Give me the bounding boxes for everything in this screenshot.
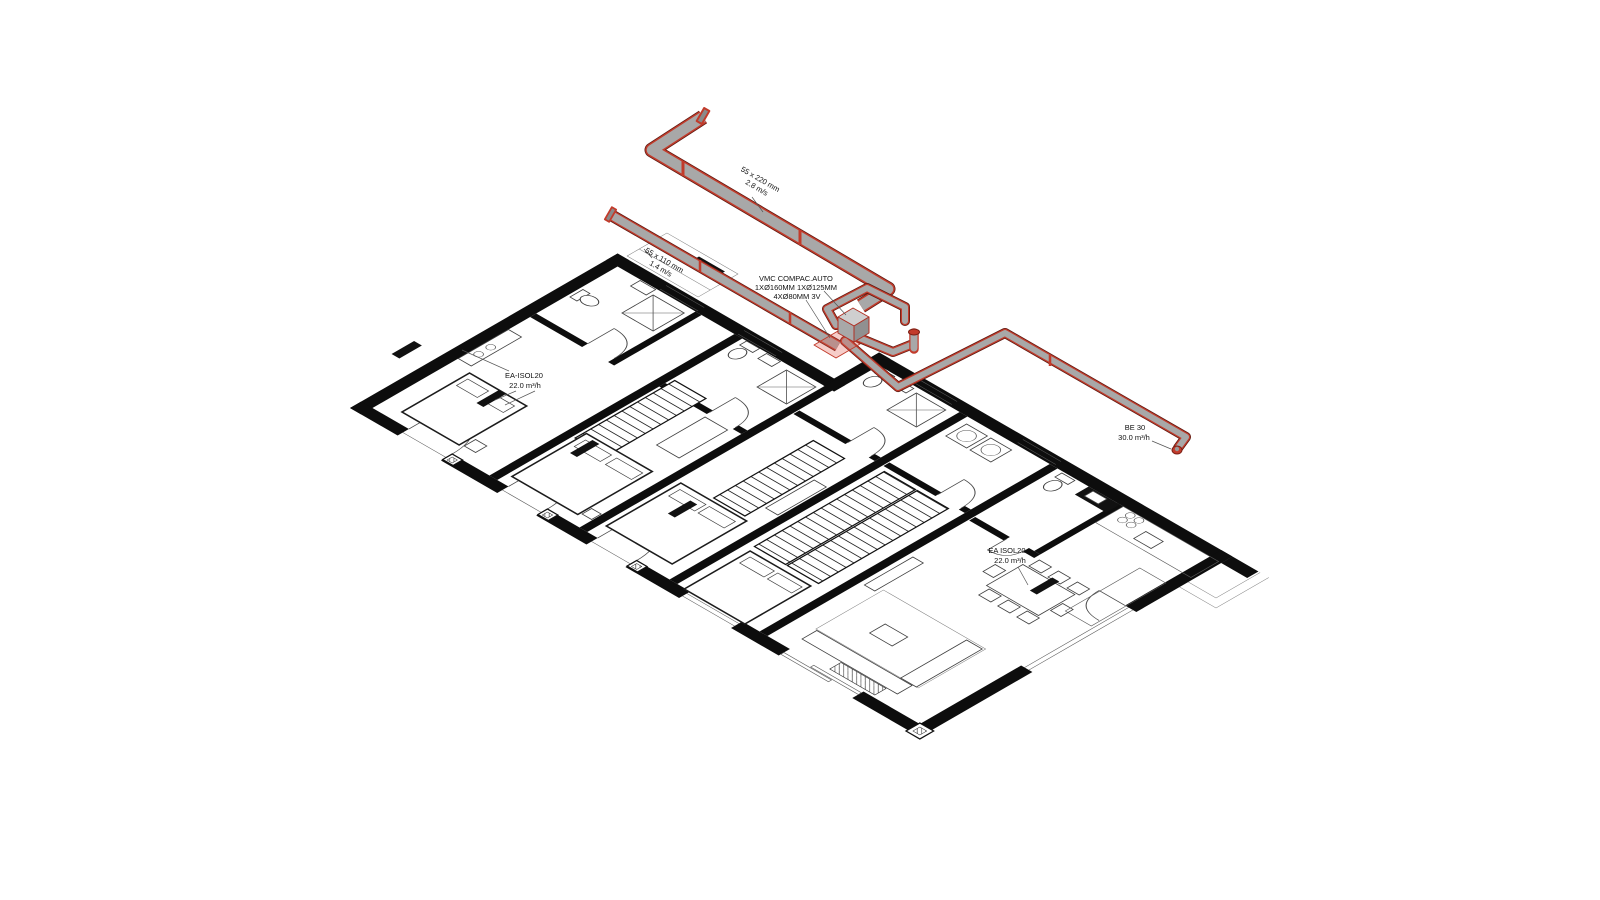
sofa-chaise xyxy=(901,640,982,687)
extract-right-label: EA ISOL20 22.0 m³/h xyxy=(988,546,1027,565)
hvac-isometric-drawing: 55 x 220 mm 2.8 m/s 55 x 110 mm 1.4 m/s … xyxy=(0,0,1600,900)
kitchen-sink xyxy=(1134,532,1163,549)
riser-cap xyxy=(909,329,920,335)
vmc-unit-label: VMC COMPAC.AUTO 1XØ160MM 1XØ125MM 4XØ80M… xyxy=(755,274,839,301)
duct-main-cap xyxy=(697,108,710,124)
coffee-table xyxy=(870,624,908,646)
extract-left-label: EA-ISOL20 22.0 m³/h xyxy=(505,371,545,390)
be30-outlet-label: BE 30 30.0 m³/h xyxy=(1118,423,1150,442)
drawing-canvas: 55 x 220 mm 2.8 m/s 55 x 110 mm 1.4 m/s … xyxy=(0,0,1600,900)
facade-grille xyxy=(392,341,422,359)
